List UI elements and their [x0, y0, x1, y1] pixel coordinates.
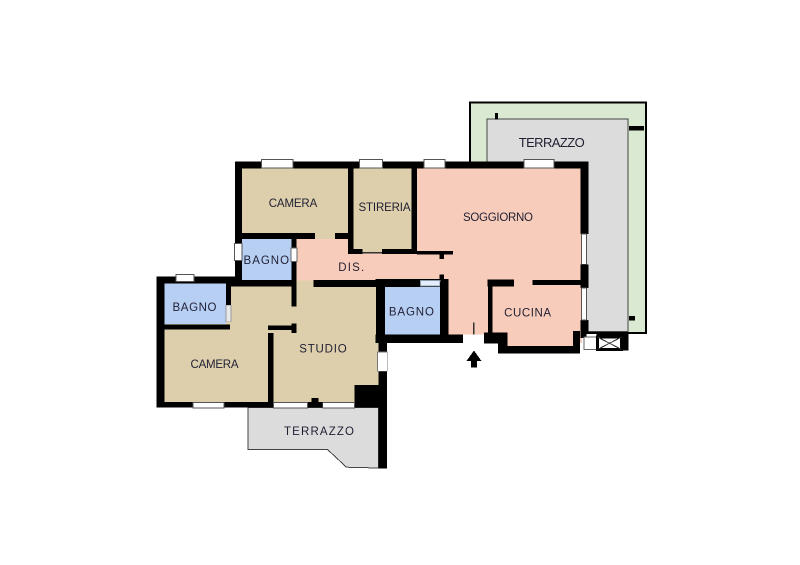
svg-text:STUDIO: STUDIO — [299, 344, 347, 356]
svg-text:STIRERIA: STIRERIA — [359, 202, 411, 214]
svg-text:TERRAZZO: TERRAZZO — [519, 135, 585, 150]
svg-text:CAMERA: CAMERA — [269, 198, 318, 210]
svg-text:BAGNO: BAGNO — [173, 302, 217, 314]
svg-text:BAGNO: BAGNO — [389, 307, 434, 319]
svg-text:TERRAZZO: TERRAZZO — [284, 426, 354, 438]
svg-text:DIS.: DIS. — [338, 262, 364, 274]
svg-text:CAMERA: CAMERA — [191, 359, 239, 371]
svg-text:SOGGIORNO: SOGGIORNO — [463, 212, 533, 224]
svg-text:BAGNO: BAGNO — [244, 255, 290, 267]
svg-text:CUCINA: CUCINA — [504, 308, 551, 320]
